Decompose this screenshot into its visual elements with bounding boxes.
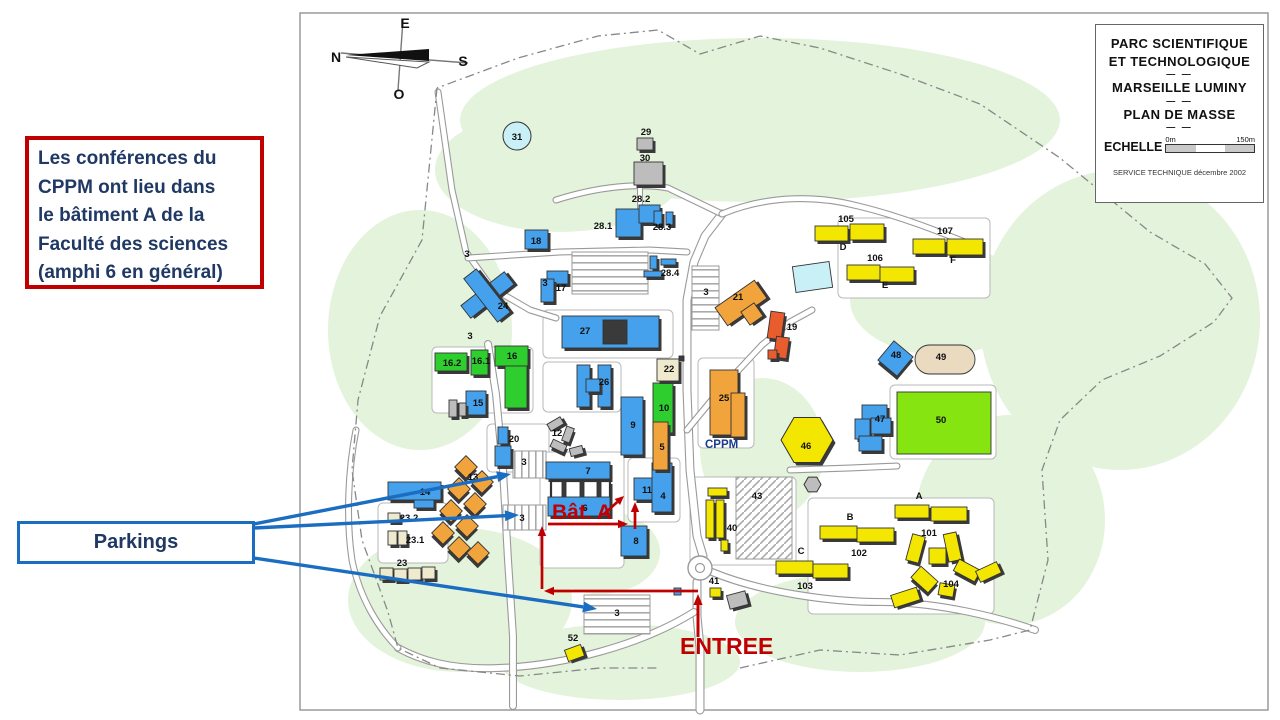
map-label-7: 7 — [585, 466, 590, 477]
map-label-3: 3 — [467, 331, 472, 342]
building-14b — [414, 500, 437, 511]
legend-title-2: ET TECHNOLOGIQUE — [1109, 53, 1250, 71]
map-label-19: 19 — [787, 322, 798, 333]
parking-lot — [692, 266, 719, 330]
map-label-11: 11 — [642, 485, 653, 496]
map-label-29: 29 — [641, 127, 652, 138]
map-label-22: 22 — [664, 364, 675, 375]
map-label-C: C — [798, 546, 805, 557]
building-103b — [813, 564, 851, 581]
map-label-27: 27 — [580, 326, 591, 337]
map-label-21: 21 — [733, 292, 744, 303]
map-label-3: 3 — [521, 457, 526, 468]
map-label-28.2: 28.2 — [632, 194, 651, 205]
map-label-46: 46 — [801, 441, 812, 452]
green-patch — [468, 78, 592, 162]
parkings-label: Parkings — [94, 531, 178, 554]
building-20b — [495, 446, 514, 469]
building-103a — [776, 561, 816, 577]
building-27-grid — [603, 320, 627, 344]
building-16b — [505, 366, 530, 411]
map-label-41: 41 — [709, 576, 720, 587]
building-29 — [637, 138, 656, 153]
map-label-28.4: 28.4 — [661, 268, 680, 279]
map-label-3: 3 — [703, 287, 708, 298]
building-7 — [546, 462, 613, 482]
conference-note: Les conférences du CPPM ont lieu dans le… — [25, 136, 264, 289]
map-label-25: 25 — [719, 393, 730, 404]
building-25b — [731, 393, 748, 440]
map-label-8: 8 — [633, 536, 638, 547]
legend-box: PARC SCIENTIFIQUE ET TECHNOLOGIQUE — — M… — [1095, 24, 1264, 203]
building-102b — [857, 528, 897, 545]
building-pool — [792, 262, 832, 293]
entree-label: ENTREE — [680, 633, 773, 659]
building-105b — [850, 224, 887, 243]
map-label-26: 26 — [599, 377, 610, 388]
building-40c — [708, 488, 730, 499]
map-label-103: 103 — [797, 581, 813, 592]
map-label-23.1: 23.1 — [406, 535, 425, 546]
map-label-3: 3 — [519, 513, 524, 524]
building-107a — [913, 239, 948, 257]
building-30 — [634, 162, 666, 188]
map-label-20: 20 — [509, 434, 520, 445]
map-label-49: 49 — [936, 352, 947, 363]
parking-lot — [513, 451, 546, 478]
compass-N: N — [331, 49, 341, 65]
map-label-F: F — [950, 255, 956, 266]
map-label-5: 5 — [659, 442, 665, 453]
bat-a-label: Bât. A — [552, 501, 612, 524]
building-47d — [859, 436, 885, 454]
map-label-30: 30 — [640, 153, 651, 164]
map-label-106: 106 — [867, 253, 883, 264]
map-label-9: 9 — [630, 420, 635, 431]
parkings-label-box: Parkings — [17, 521, 255, 564]
map-label-47: 47 — [875, 414, 886, 425]
legend-divider: — — — [1166, 97, 1193, 106]
map-label-3: 3 — [614, 608, 619, 619]
building-40b — [716, 500, 727, 541]
map-label-107: 107 — [937, 226, 953, 237]
building-22-dot — [679, 356, 684, 361]
legend-title-3: MARSEILLE LUMINY — [1112, 79, 1247, 97]
map-label-3: 3 — [542, 278, 547, 289]
echelle-label: ECHELLE — [1104, 141, 1162, 153]
scale-end: 150m — [1236, 136, 1255, 144]
map-label-102: 102 — [851, 548, 867, 559]
legend-divider: — — — [1166, 70, 1193, 79]
map-label-E: E — [882, 280, 888, 291]
scale-start: 0m — [1165, 136, 1175, 144]
building-15a — [449, 400, 460, 420]
building-40a — [706, 500, 717, 541]
map-label-24: 24 — [498, 301, 509, 312]
building-28-4b — [661, 259, 679, 268]
legend-title-1: PARC SCIENTIFIQUE — [1111, 35, 1248, 53]
legend-title-4: PLAN DE MASSE — [1123, 106, 1235, 124]
legend-divider: — — — [1166, 123, 1193, 132]
cppm-map-label: CPPM — [705, 439, 738, 451]
building-106a — [847, 265, 883, 283]
map-label-31: 31 — [512, 132, 523, 143]
map-label-3: 3 — [464, 249, 469, 260]
map-label-16.2: 16.2 — [443, 358, 462, 369]
map-label-16: 16 — [507, 351, 518, 362]
map-label-28.1: 28.1 — [594, 221, 613, 232]
map-label-43: 43 — [752, 491, 763, 502]
campus-map: 3333333293028.228.128.328.424122023.223.… — [0, 0, 1280, 720]
building-101b — [931, 507, 970, 524]
map-label-4: 4 — [660, 491, 666, 502]
legend-scale: ECHELLE 0m 150m — [1104, 136, 1255, 153]
page: 3333333293028.228.128.328.424122023.223.… — [0, 0, 1280, 720]
scale-bar — [1165, 144, 1255, 153]
map-label-23: 23 — [397, 558, 408, 569]
building-104b — [929, 548, 949, 567]
map-label-105: 105 — [838, 214, 855, 225]
map-label-50: 50 — [936, 415, 947, 426]
map-label-B: B — [847, 512, 854, 523]
map-label-28.3: 28.3 — [653, 222, 672, 233]
map-label-12: 12 — [552, 428, 563, 439]
map-label-104: 104 — [943, 579, 960, 590]
map-label-17: 17 — [556, 283, 567, 294]
building-hex-small — [804, 477, 821, 492]
map-label-40: 40 — [727, 523, 738, 534]
map-label-10: 10 — [659, 403, 670, 414]
map-label-16.1: 16.1 — [472, 356, 491, 367]
compass-E: E — [400, 15, 409, 31]
map-label-101: 101 — [921, 528, 938, 539]
legend-footer: SERVICE TECHNIQUE décembre 2002 — [1113, 168, 1246, 177]
compass-S: S — [458, 53, 467, 69]
building-101a — [895, 505, 932, 521]
compass-O: O — [394, 86, 405, 102]
parking-lot — [736, 477, 792, 559]
parking-lot — [572, 252, 648, 294]
building-102a — [820, 526, 860, 542]
map-label-15: 15 — [473, 398, 484, 409]
map-label-48: 48 — [891, 350, 902, 361]
map-label-A: A — [916, 491, 923, 502]
map-label-52: 52 — [568, 633, 579, 644]
map-label-18: 18 — [531, 236, 542, 247]
map-label-D: D — [840, 242, 847, 253]
